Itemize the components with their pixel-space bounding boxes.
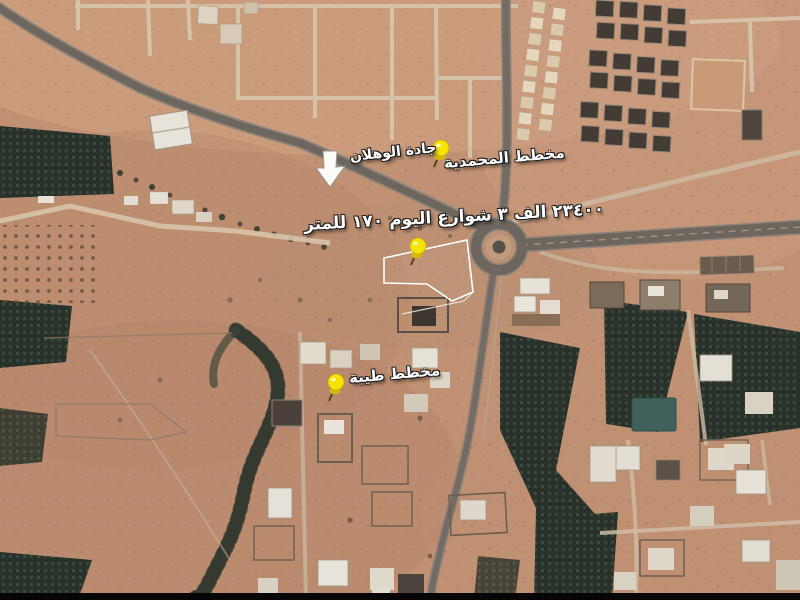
warehouse-building: [150, 110, 193, 150]
orchard-field: [0, 225, 95, 303]
farm-pond: [632, 398, 676, 431]
map-canvas: [0, 0, 800, 600]
satellite-map-view[interactable]: جادة الوهلان مخطط المحمدية ٢٣٤٠٠ الف ٣ ش…: [0, 0, 800, 600]
letterbox-bar: [0, 593, 800, 600]
walled-lot: [691, 59, 745, 111]
